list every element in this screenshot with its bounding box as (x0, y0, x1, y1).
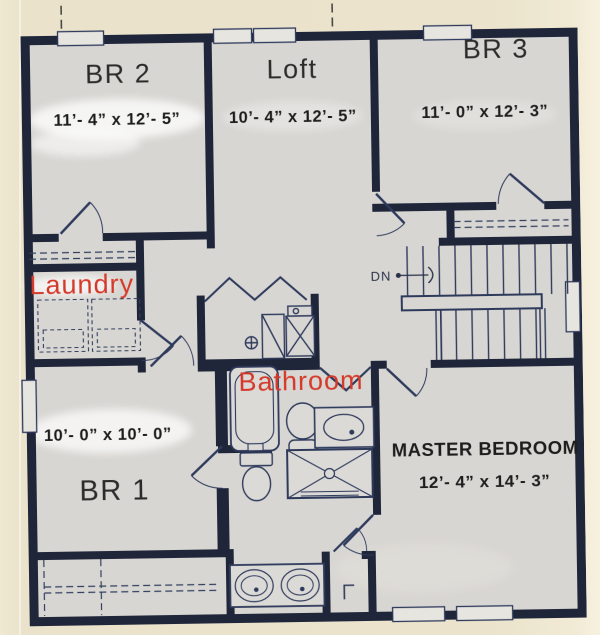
floor-drain-icon (245, 337, 257, 349)
wall-br2-bottom-left (24, 234, 59, 243)
room-br2-label: BR 2 (85, 58, 151, 89)
room-laundry-label: Laundry (29, 269, 134, 301)
wall-br1-right-upper (215, 363, 228, 446)
wall-br2-bottom-right (103, 231, 207, 241)
stair-upper-run (405, 244, 573, 297)
master-toilet (240, 452, 273, 500)
room-br3-dimensions: 11’- 0” x 12’- 3” (421, 102, 548, 122)
room-loft-dimensions: 10’- 4” x 12’- 5” (229, 107, 357, 127)
window-loft-1 (213, 29, 251, 44)
floor-plan-svg: DN (0, 0, 600, 635)
wall-br3-bottom-right (544, 201, 571, 209)
scanned-floor-plan-page: DN (0, 0, 600, 635)
room-master-dimensions: 12’- 4” x 14’- 3” (419, 471, 551, 492)
water-heater-top (288, 306, 312, 316)
wall-utility-left (197, 295, 206, 359)
wall-linen-right (368, 551, 377, 612)
stair-lower-run (440, 308, 541, 360)
wall-br3-closet-left (446, 211, 454, 238)
room-br2-dimensions: 11’- 4” x 12’- 5” (53, 110, 180, 130)
dn-label: DN (370, 269, 391, 284)
room-br1-label: BR 1 (79, 474, 150, 507)
window-br1 (22, 380, 37, 432)
sink (314, 407, 374, 448)
room-master-label: MASTER BEDROOM (391, 437, 578, 461)
window-master-2 (457, 606, 513, 621)
window-br2 (57, 31, 103, 46)
room-br1-dimensions: 10’- 0” x 10’- 0” (44, 425, 172, 445)
wall-stub-corridor (371, 361, 387, 369)
floor-plan-wrapper: DN (0, 0, 600, 635)
double-vanity (230, 564, 325, 607)
window-master-1 (393, 607, 445, 622)
room-bathroom-label: Bathroom (238, 365, 364, 397)
room-loft-label: Loft (266, 54, 318, 85)
stair-rail (402, 294, 542, 310)
room-br3-label: BR 3 (463, 33, 529, 64)
wall-br1-right-lower (217, 488, 230, 557)
window-loft-2 (253, 28, 295, 43)
shower (287, 449, 373, 498)
